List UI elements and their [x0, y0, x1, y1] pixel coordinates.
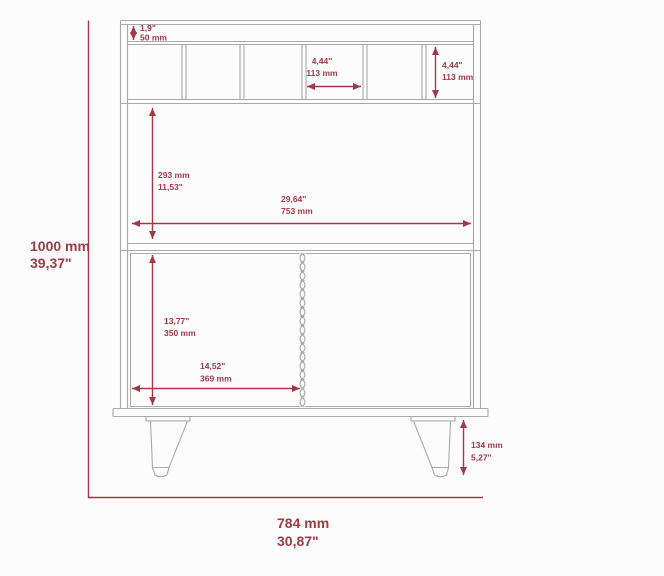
overall-width-label-mm: 784 mm	[277, 515, 329, 531]
overall-extent-line	[89, 21, 484, 498]
shelf-width-label-mm: 753 mm	[281, 206, 313, 216]
left-leg-foot	[153, 468, 170, 477]
slot-divider	[182, 45, 186, 100]
right-leg	[414, 421, 451, 468]
overall-width-label-in: 30,87"	[277, 533, 319, 549]
right-door-scalloped-edge	[300, 254, 305, 407]
overall-height-label-mm: 1000 mm	[30, 238, 90, 254]
top-gap-label-in: 1,9"	[140, 23, 156, 33]
dimension-lines	[89, 21, 484, 498]
wine-slot-dividers	[182, 45, 426, 100]
shelf-width-label-in: 29,64"	[281, 194, 306, 204]
left-door-scalloped-edge	[301, 254, 306, 407]
slot-height-label-in: 4,44"	[442, 60, 463, 70]
door-width-label-in: 14,52"	[200, 361, 225, 371]
slot-divider	[302, 45, 306, 100]
right-leg-foot	[432, 468, 449, 477]
right-leg-mount-plate	[411, 417, 455, 422]
slot-divider	[240, 45, 244, 100]
slot-width-label-mm: 113 mm	[306, 68, 338, 78]
cabinet-dimension-diagram: 1,9" 50 mm 4,44" 113 mm 4,44" 113 mm 293…	[0, 0, 664, 576]
slot-height-label-mm: 113 mm	[442, 72, 474, 82]
slot-width-label-in: 4,44"	[312, 56, 333, 66]
shelf-height-label-in: 11,53"	[158, 182, 183, 192]
door-width-label-mm: 369 mm	[200, 374, 232, 384]
door-height-label-in: 13,77"	[164, 316, 189, 326]
leg-height-label-mm: 134 mm	[471, 440, 503, 450]
leg-height-label-in: 5,27"	[471, 453, 492, 463]
top-gap-label-mm: 50 mm	[140, 33, 167, 43]
slot-divider	[363, 45, 367, 100]
left-leg-mount-plate	[146, 417, 190, 422]
overall-height-label-in: 39,37"	[30, 255, 72, 271]
door-height-label-mm: 350 mm	[164, 328, 196, 338]
cabinet-legs	[146, 417, 455, 477]
right-door-outline	[306, 254, 471, 407]
shelf-height-label-mm: 293 mm	[158, 170, 190, 180]
slot-divider	[422, 45, 426, 100]
dimension-labels: 1,9" 50 mm 4,44" 113 mm 4,44" 113 mm 293…	[30, 23, 503, 549]
left-leg	[151, 421, 188, 468]
left-door-outline	[131, 254, 300, 407]
